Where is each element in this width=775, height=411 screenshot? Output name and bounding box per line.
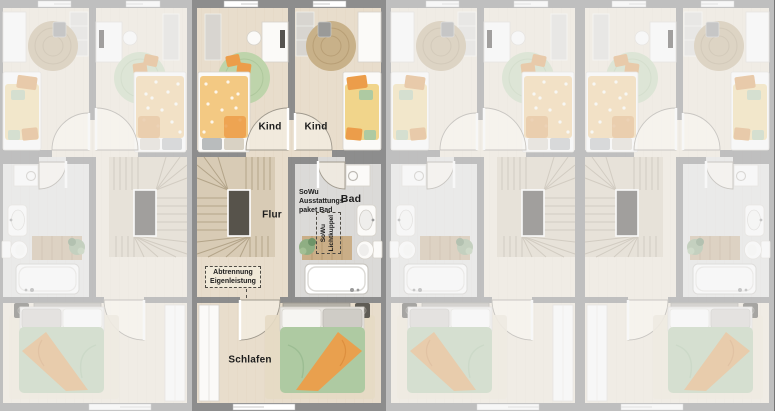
room-label-kind-left: Kind xyxy=(258,122,281,133)
skylight-note: SoWu Lichtkuppel xyxy=(316,212,341,254)
unit-4[interactable] xyxy=(580,0,774,411)
partition-note: Abtrennung Eigenleistung xyxy=(205,266,261,288)
floorplan-canvas: Kind Kind Flur Bad Schlafen SoWu Ausstat… xyxy=(0,0,775,411)
room-label-schlafen: Schlafen xyxy=(228,355,271,366)
unit-3[interactable] xyxy=(386,0,580,411)
unit-1[interactable] xyxy=(0,0,192,411)
unit-2[interactable]: Kind Kind Flur Bad Schlafen SoWu Ausstat… xyxy=(192,0,386,411)
room-label-kind-right: Kind xyxy=(304,122,327,133)
room-label-flur: Flur xyxy=(262,210,282,221)
unit-2-labels: Kind Kind Flur Bad Schlafen SoWu Ausstat… xyxy=(192,0,386,411)
partition-line xyxy=(246,289,247,298)
